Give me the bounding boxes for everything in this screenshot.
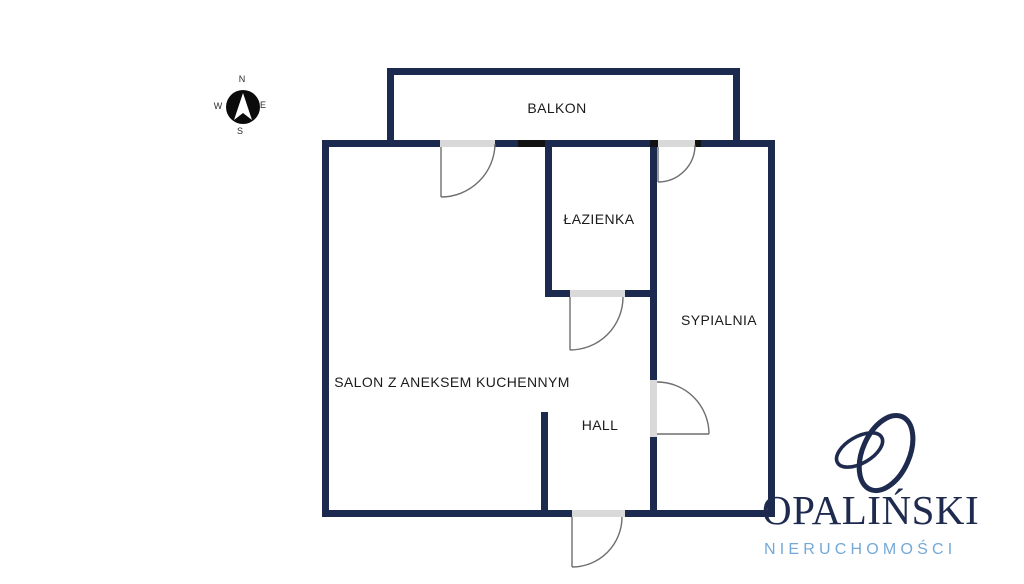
logo-tagline: NIERUCHOMOŚCI: [764, 542, 956, 558]
salon-balcony-door-opening: [440, 140, 495, 147]
compass-rose: N S W E: [210, 70, 276, 144]
room-label-hall: HALL: [582, 417, 619, 433]
room-label-salon: SALON Z ANEKSEM KUCHENNYM: [334, 374, 570, 390]
top-wall-segment: [701, 140, 775, 147]
left-outer-wall: [322, 147, 329, 517]
wall-marker: [518, 140, 545, 147]
bedroom-door-opening: [650, 380, 657, 437]
room-label-balkon: BALKON: [527, 100, 586, 116]
balcony-top-wall: [387, 68, 740, 75]
bathroom-door-opening: [570, 290, 625, 297]
salon-hall-wall-stub: [541, 412, 548, 517]
top-wall-segment: [545, 140, 650, 147]
logo-name: OPALIŃSKI: [762, 490, 979, 531]
room-label-lazienka: ŁAZIENKA: [564, 211, 635, 227]
agency-logo: OPALIŃSKI NIERUCHOMOŚCI: [760, 408, 1024, 576]
bottom-wall-segment: [322, 510, 572, 517]
door-jamb-marker: [650, 140, 658, 147]
entrance-door-arc: [572, 517, 622, 567]
bedroom-door-arc: [657, 382, 709, 434]
room-label-sypialnia: SYPIALNIA: [681, 312, 757, 328]
floor-plan: N S W E BALKON ŁAZIENKA: [0, 0, 1024, 584]
bathroom-bottom-wall-segment: [545, 290, 570, 297]
bathroom-door-arc: [570, 297, 623, 350]
compass-east-label: E: [260, 100, 266, 110]
entrance-door-opening: [572, 510, 625, 517]
top-wall-segment: [495, 140, 518, 147]
compass-south-label: S: [237, 126, 243, 136]
bathroom-left-wall: [545, 147, 552, 297]
salon-balcony-door-arc: [441, 144, 495, 197]
compass-north-label: N: [239, 74, 246, 84]
bedroom-balcony-door-arc: [658, 145, 695, 182]
bedroom-wall-segment: [650, 147, 657, 380]
bedroom-balcony-door-opening: [658, 140, 695, 147]
balcony-left-wall: [387, 75, 394, 140]
top-wall-segment: [322, 140, 440, 147]
logo-ornament-o-icon: [828, 408, 938, 496]
bottom-wall-segment: [625, 510, 775, 517]
balcony-right-wall: [733, 75, 740, 140]
compass-west-label: W: [214, 101, 223, 111]
bedroom-wall-segment: [650, 437, 657, 517]
